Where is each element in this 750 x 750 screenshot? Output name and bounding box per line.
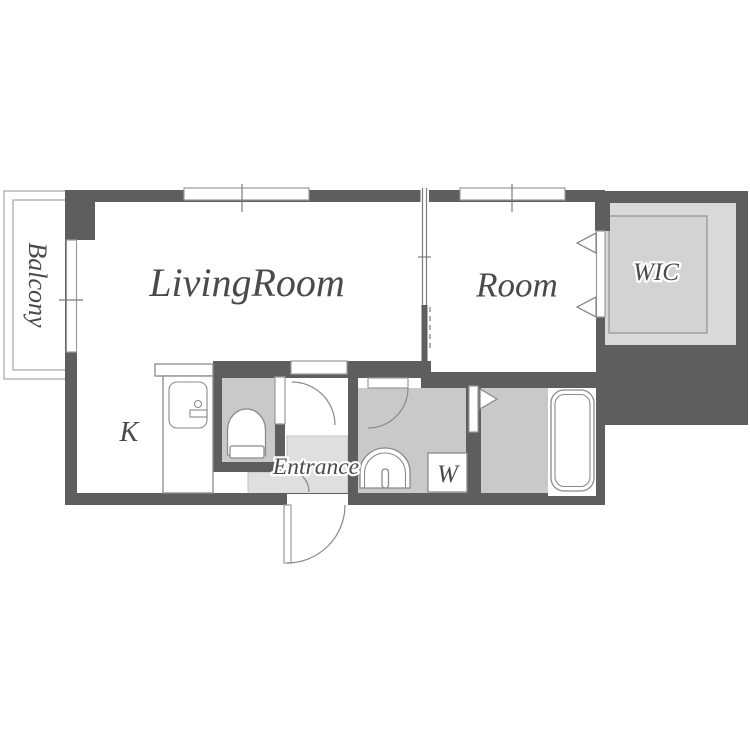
- counter-ledge: [155, 364, 213, 376]
- kitchen-counter: [155, 364, 213, 493]
- vanity-sink: [360, 448, 410, 488]
- closet-door-leaf: [597, 231, 606, 317]
- vanity-faucet-icon: [382, 469, 389, 488]
- washer-label: W: [437, 461, 460, 488]
- wall-room-south: [421, 372, 605, 388]
- bathtub-outer: [551, 390, 594, 491]
- partition-track-gap: [421, 189, 430, 203]
- hall-door-leaf: [291, 361, 347, 374]
- entrance-opening: [287, 494, 348, 505]
- toilet-fixture: [228, 409, 266, 458]
- hall-door-arc: [292, 382, 335, 425]
- entrance-door-arc: [287, 505, 345, 563]
- floor-plan: Balcony LivingRoom Room WIC K Entrance W: [0, 0, 750, 750]
- bathroom-floor: [481, 388, 548, 496]
- wall-partition-pocket: [422, 305, 428, 375]
- entrance-label: Entrance: [272, 454, 359, 480]
- living-window: [184, 188, 309, 200]
- living-room-label: LivingRoom: [148, 260, 345, 305]
- room-label: Room: [475, 265, 558, 304]
- wall-room-ne-column: [595, 191, 610, 231]
- kitchen-label: K: [119, 417, 140, 448]
- counter-body: [163, 376, 213, 493]
- bathtub: [548, 388, 596, 496]
- wall-toilet-left: [213, 361, 222, 472]
- balcony-window: [67, 240, 77, 352]
- closet-folding-door-arrow-bottom: [577, 297, 596, 317]
- entrance-door-leaf: [284, 505, 291, 563]
- washroom-door-leaf: [368, 378, 408, 388]
- bath-door-leaf: [469, 386, 478, 432]
- balcony-label: Balcony: [23, 242, 52, 328]
- toilet-tank: [230, 446, 264, 458]
- closet-folding-door-arrow-top: [577, 233, 596, 253]
- floor-plan-drawing: Balcony LivingRoom Room WIC K Entrance W: [0, 0, 750, 750]
- toilet-door-leaf: [275, 377, 285, 424]
- wic-label: WIC: [633, 259, 679, 286]
